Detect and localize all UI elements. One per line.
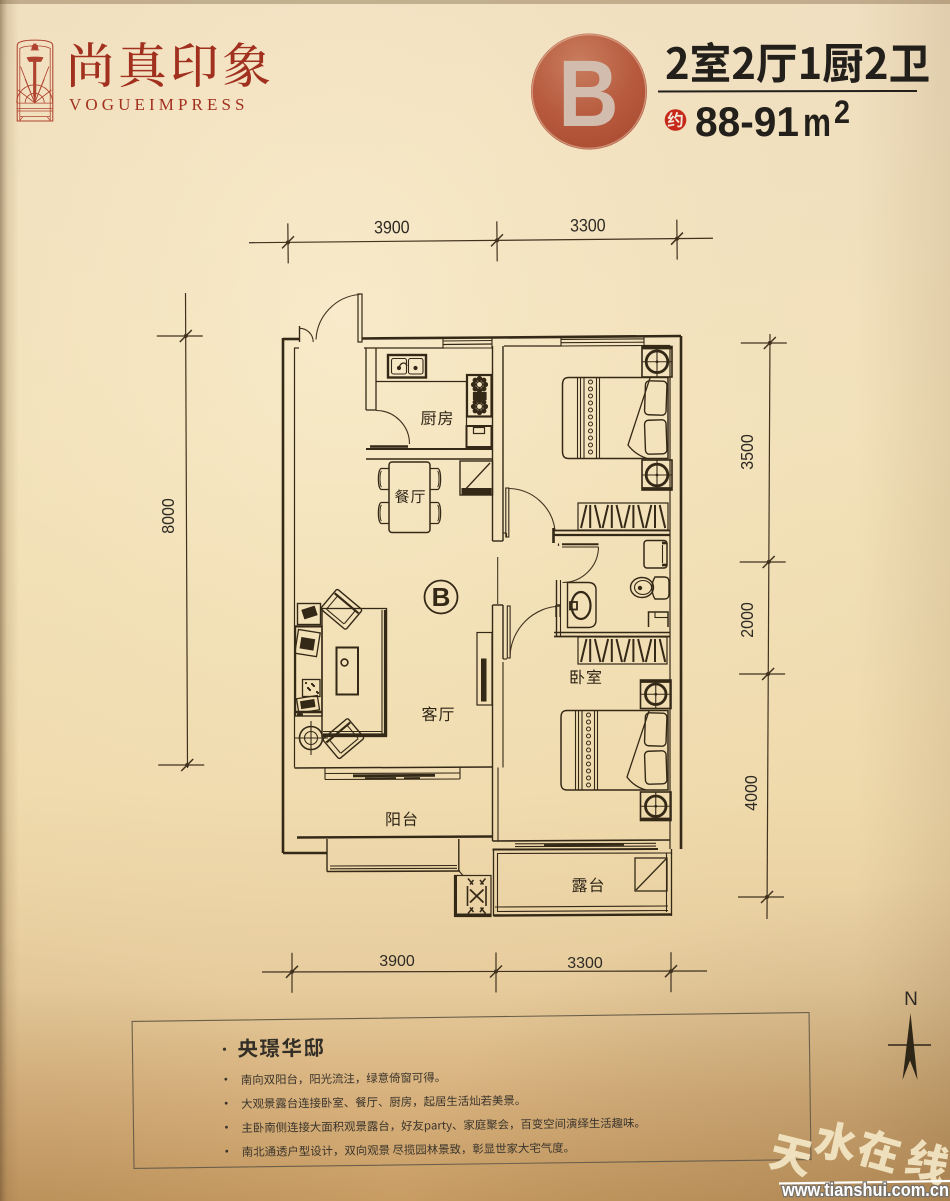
svg-text:B: B (558, 40, 618, 146)
svg-text:3900: 3900 (374, 217, 410, 237)
svg-text:m: m (803, 101, 831, 145)
svg-text:3300: 3300 (567, 955, 603, 972)
svg-text:3900: 3900 (379, 953, 415, 970)
svg-text:2: 2 (834, 94, 850, 130)
svg-text:3300: 3300 (570, 215, 606, 235)
svg-text:8000: 8000 (158, 498, 178, 534)
svg-text:4000: 4000 (741, 775, 761, 811)
svg-text:N: N (904, 989, 918, 1010)
svg-text:B: B (432, 582, 451, 612)
svg-text:www.tianshui.com.cn: www.tianshui.com.cn (781, 1180, 949, 1200)
svg-text:3500: 3500 (737, 434, 757, 470)
svg-text:88-91: 88-91 (695, 98, 799, 145)
svg-text:VOGUEIMPRESS: VOGUEIMPRESS (69, 95, 249, 114)
svg-text:2000: 2000 (737, 602, 757, 638)
